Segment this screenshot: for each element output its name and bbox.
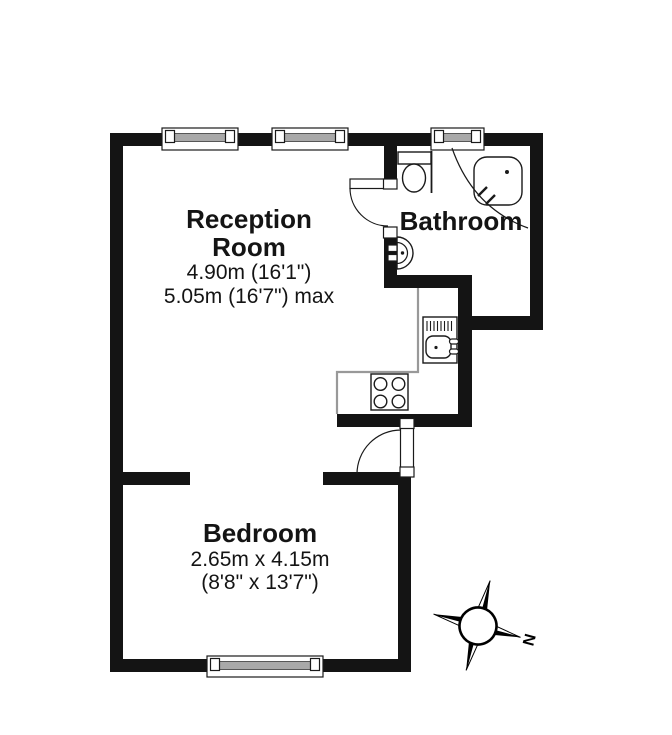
wall-bathroom-bottom [465,316,543,330]
wall-left [110,133,123,672]
bedroom-window [207,656,323,677]
wall-bedroom-top-right [323,472,398,485]
reception-label-line2: Room [212,232,286,262]
bedroom-label: Bedroom [203,518,317,548]
entry-door [357,419,414,478]
kitchen-sink [423,317,459,363]
floorplan-svg: Reception Room 4.90m (16'1") 5.05m (16'7… [0,0,672,735]
bathroom-door [350,179,397,238]
wall-bathroom-right [530,133,543,330]
wall-bedroom-right [398,472,411,672]
compass-rose: N [422,569,549,686]
toilet [398,152,431,192]
north-label: N [519,632,538,648]
floorplan-page: Reception Room 4.90m (16'1") 5.05m (16'7… [0,0,672,735]
wall-kitchen-top [384,275,472,288]
bathroom-label: Bathroom [400,206,523,236]
reception-dimensions-2: 5.05m (16'7") max [164,285,335,308]
bedroom-dimensions-2: (8'8" x 13'7") [201,571,318,594]
bedroom-dimensions-1: 2.65m x 4.15m [191,548,330,571]
reception-label-line1: Reception [186,204,312,234]
hob [371,374,408,410]
wall-kitchen-right [458,275,472,427]
reception-window-right [272,128,348,150]
compass-circle [455,603,500,648]
wall-bedroom-top-left [110,472,190,485]
bathroom-window [431,128,484,150]
reception-window-left [162,128,238,150]
reception-dimensions-1: 4.90m (16'1") [187,261,312,284]
wall-bathroom-left-upper [384,146,397,180]
